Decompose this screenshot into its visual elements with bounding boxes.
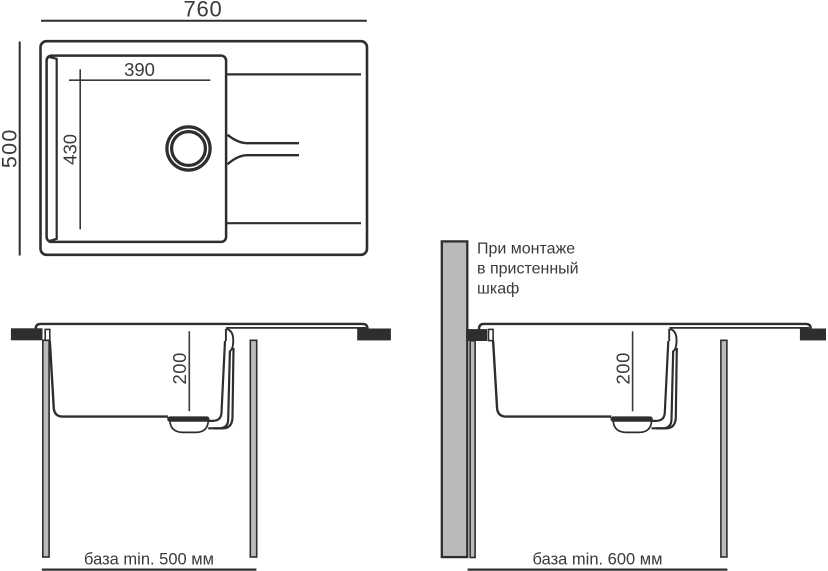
svg-text:500: 500 <box>0 128 21 168</box>
svg-text:в пристенный: в пристенный <box>477 261 579 278</box>
svg-text:шкаф: шкаф <box>477 281 519 298</box>
svg-text:760: 760 <box>183 0 222 22</box>
svg-text:база min. 600 мм: база min. 600 мм <box>533 550 663 568</box>
svg-text:200: 200 <box>169 352 190 384</box>
svg-text:430: 430 <box>60 134 81 165</box>
svg-text:база min. 500 мм: база min. 500 мм <box>84 550 214 568</box>
svg-text:390: 390 <box>124 59 155 80</box>
svg-text:200: 200 <box>612 352 633 384</box>
svg-text:При монтаже: При монтаже <box>477 241 575 258</box>
